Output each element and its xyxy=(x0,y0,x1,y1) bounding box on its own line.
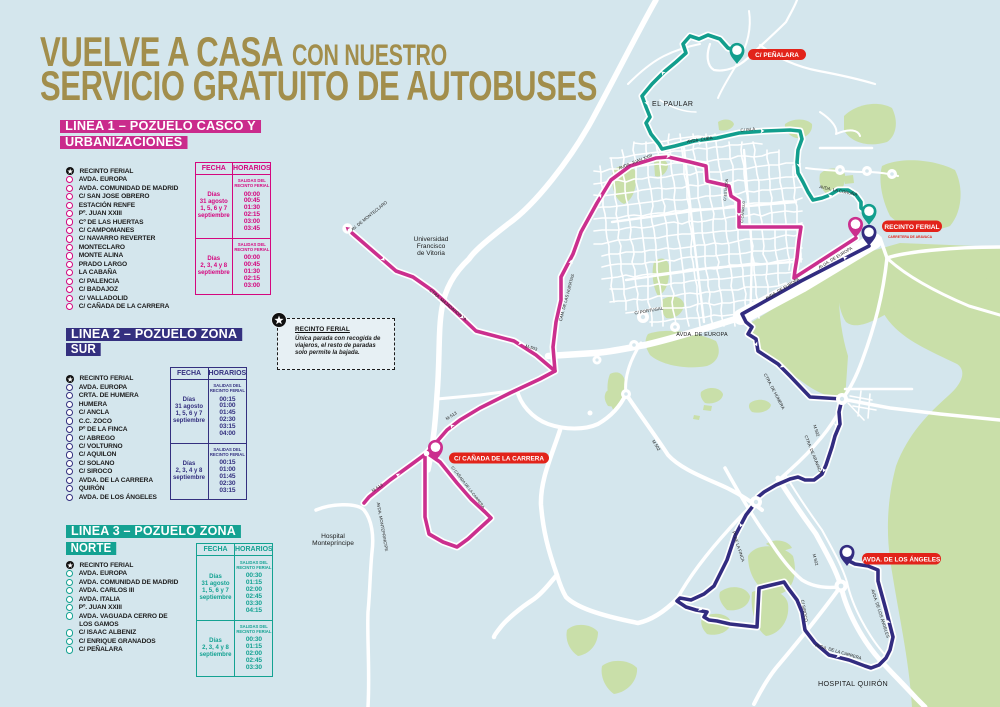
svg-text:M 502: M 502 xyxy=(812,424,821,437)
svg-text:AV. DE MONTECLARO: AV. DE MONTECLARO xyxy=(350,199,389,232)
svg-text:M 502: M 502 xyxy=(811,553,819,566)
svg-text:EL PAULAR: EL PAULAR xyxy=(652,101,693,108)
svg-text:Montepríncipe: Montepríncipe xyxy=(312,540,354,547)
svg-text:AVDA. MONTEPRINCIPE: AVDA. MONTEPRINCIPE xyxy=(376,502,390,552)
svg-text:C/ CAÑADA DE LA CARRERA: C/ CAÑADA DE LA CARRERA xyxy=(450,465,486,509)
svg-text:C/ PEÑALARA: C/ PEÑALARA xyxy=(755,50,799,59)
svg-text:Universidad: Universidad xyxy=(414,236,449,243)
svg-text:AVDA. DE LOS ÁNGELES: AVDA. DE LOS ÁNGELES xyxy=(863,555,941,564)
svg-text:de Vitoria: de Vitoria xyxy=(417,250,445,257)
svg-text:Francisco: Francisco xyxy=(417,243,446,250)
svg-text:C/ PORTUGAL: C/ PORTUGAL xyxy=(634,305,664,315)
svg-text:Hospital: Hospital xyxy=(321,533,345,540)
svg-text:CARRETERA DE ARAVACA: CARRETERA DE ARAVACA xyxy=(888,235,933,239)
svg-text:C/ CARRILLO: C/ CARRILLO xyxy=(740,201,746,224)
svg-text:C/ CAÑADA DE LA CARRERA: C/ CAÑADA DE LA CARRERA xyxy=(454,454,544,463)
svg-text:RECINTO FERIAL: RECINTO FERIAL xyxy=(884,224,939,231)
svg-text:AVDA. DE EUROPA: AVDA. DE EUROPA xyxy=(676,332,728,338)
svg-text:HOSPITAL QUIRÓN: HOSPITAL QUIRÓN xyxy=(818,679,888,688)
